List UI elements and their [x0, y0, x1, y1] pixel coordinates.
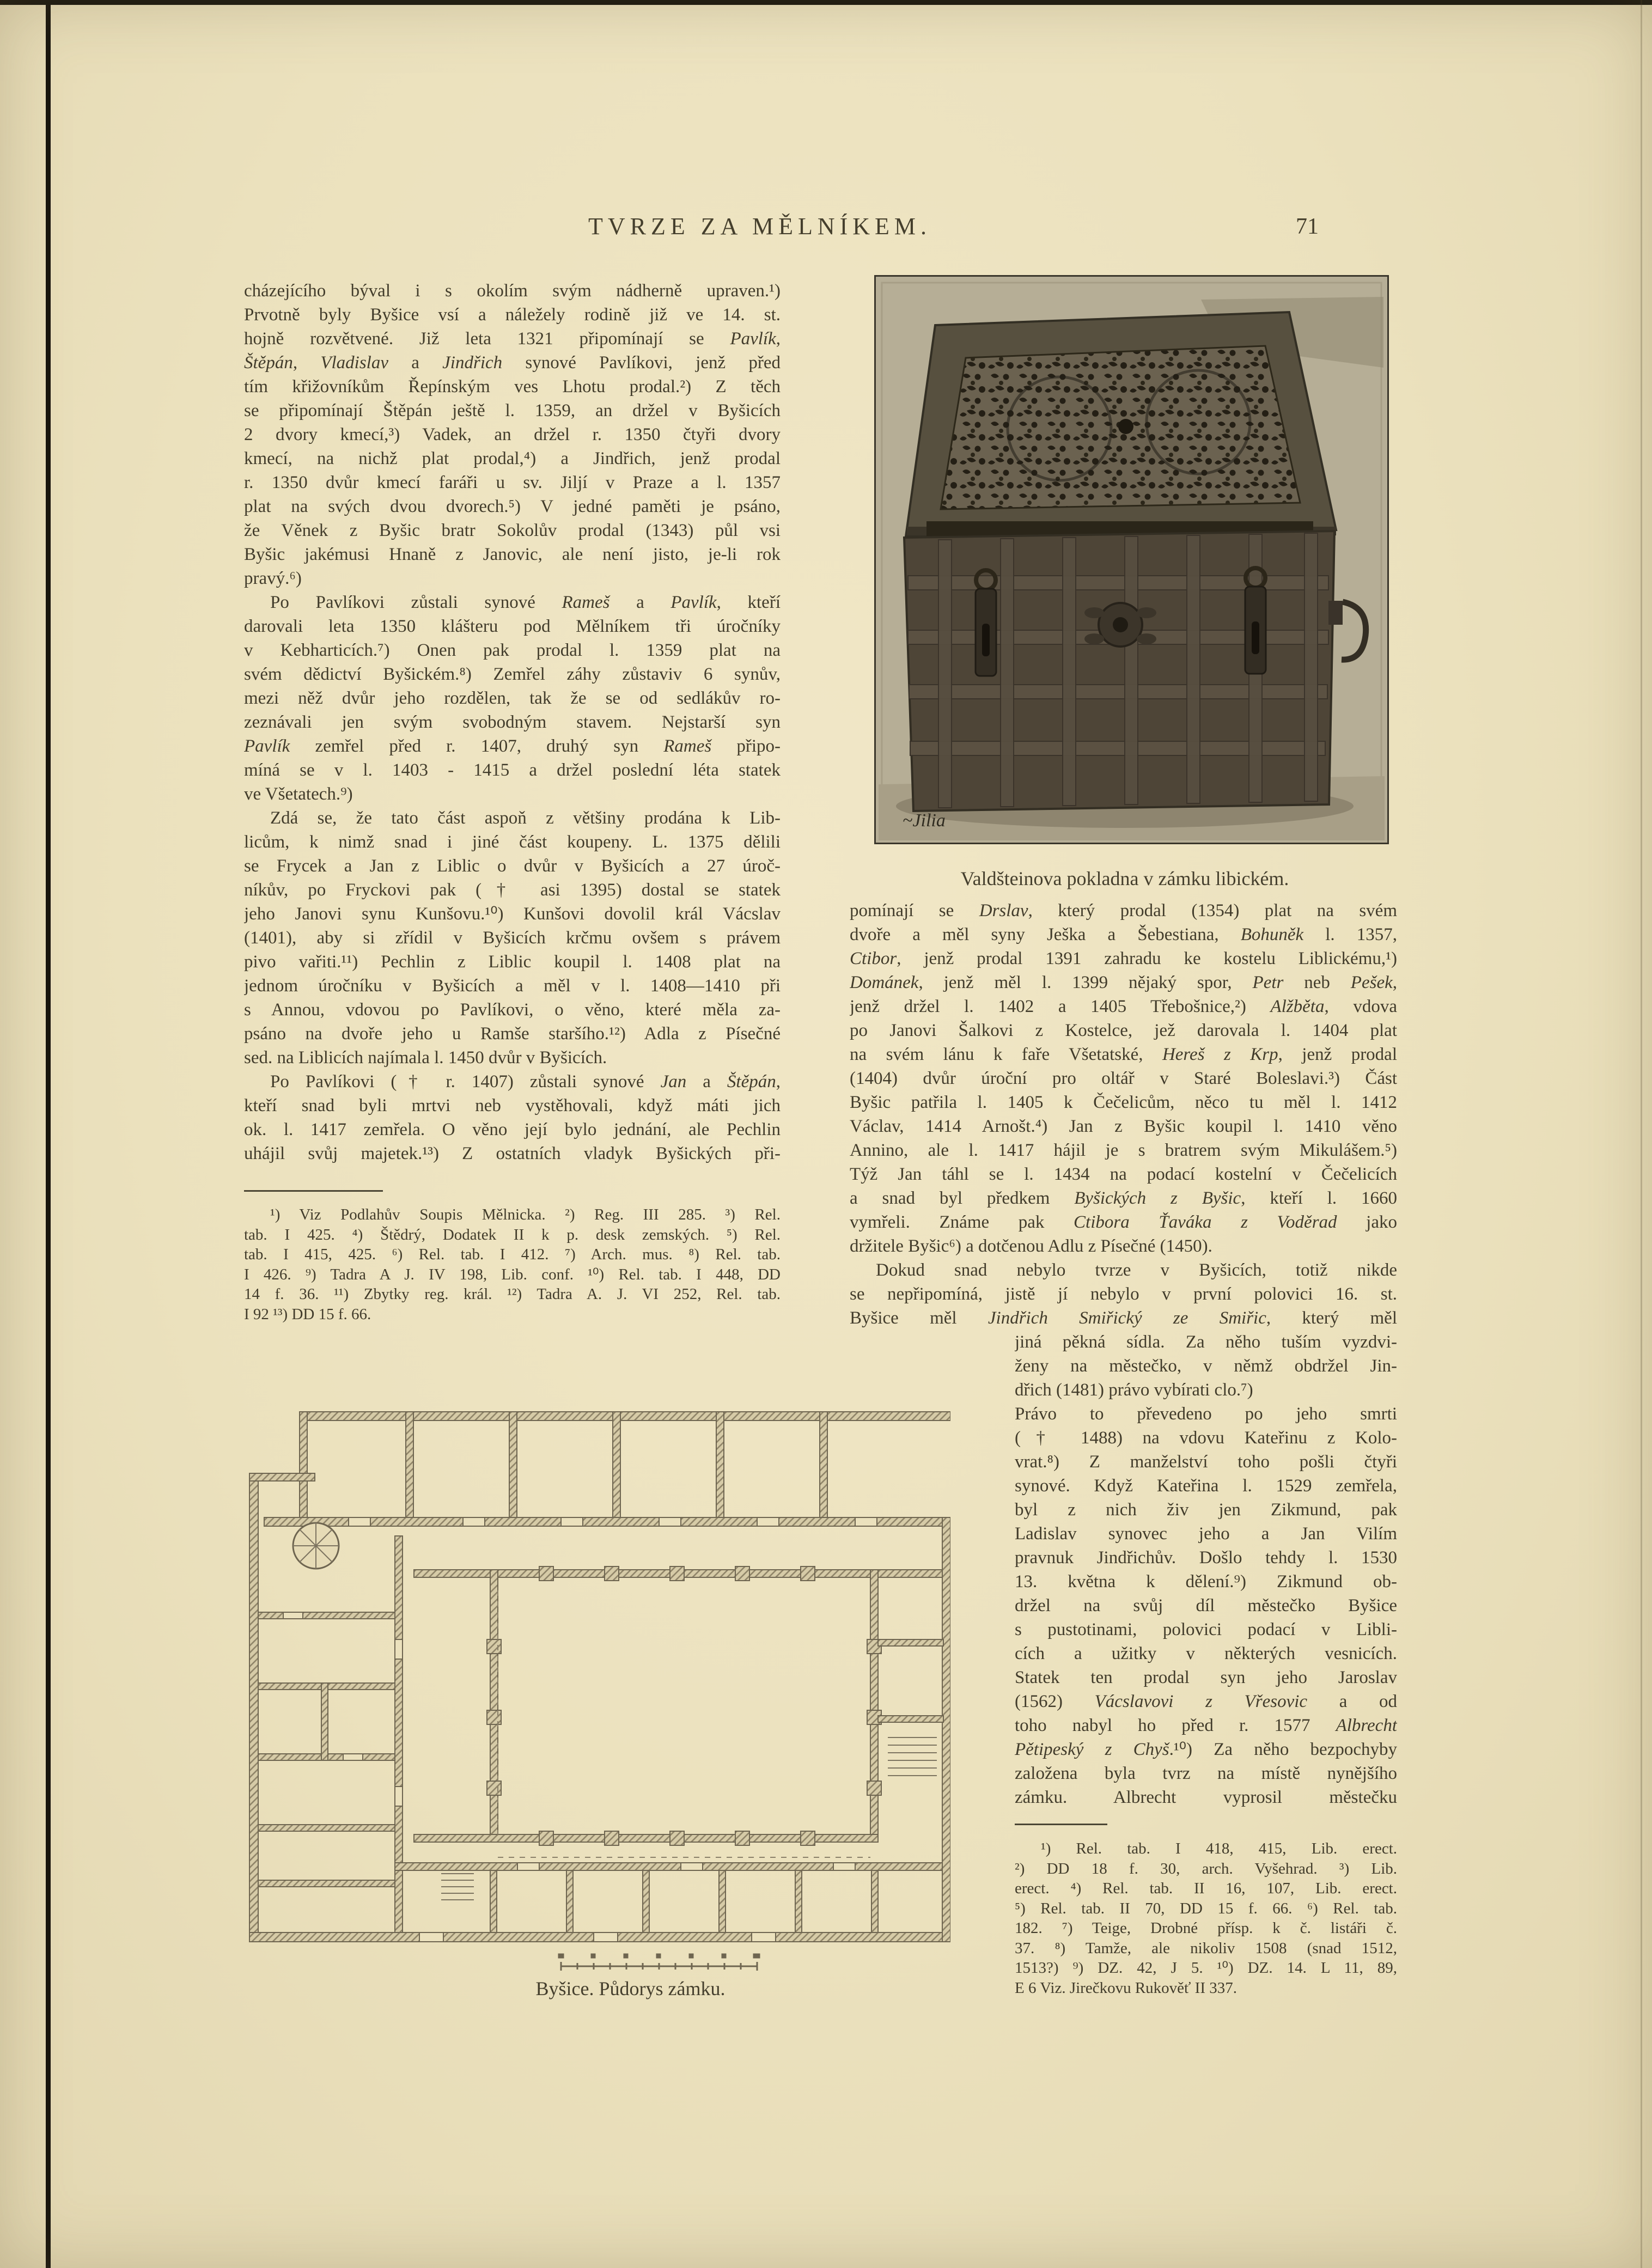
- text-line: níkův, po Fryckovi pak († asi 1395) dost…: [244, 878, 781, 902]
- text-line: Byšic jakémusi Hnaně z Janovic, ale není…: [244, 542, 781, 566]
- page-number: 71: [1269, 214, 1345, 240]
- text-line: Dománek, jenž měl l. 1399 nějaký spor, P…: [850, 971, 1397, 995]
- scan-border-right: [1641, 0, 1642, 2268]
- text-line: E 6 Viz. Jirečkovu Rukověť II 337.: [1015, 1978, 1397, 1998]
- text-line: Václav, 1414 Arnošt.⁴) Jan z Byšic koupi…: [850, 1114, 1397, 1138]
- text-line: Pavlík zemřel před r. 1407, druhý syn Ra…: [244, 734, 781, 758]
- text-line: Prvotně byly Byšice vsí a náležely rodin…: [244, 303, 781, 327]
- floor-plan-drawing: [234, 1411, 950, 1947]
- scan-border-top: [0, 0, 1652, 5]
- left-column-text: cházejícího býval i s okolím svým nádher…: [244, 279, 781, 1166]
- text-line: ⁵) Rel. tab. II 70, DD 15 f. 66. ⁶) Rel.…: [1015, 1899, 1397, 1919]
- text-line: se Frycek a Jan z Liblic o dvůr v Byšicí…: [244, 854, 781, 878]
- photo-signature: ~Jilia: [903, 810, 946, 831]
- text-line: ²) DD 18 f. 30, arch. Vyšehrad. ³) Lib.: [1015, 1859, 1397, 1879]
- text-line: na svém lánu k faře Všetatské, Hereš z K…: [850, 1042, 1397, 1066]
- text-line: (1404) dvůr úroční pro oltář v Staré Bol…: [850, 1066, 1397, 1090]
- text-line: tab. I 415, 425. ⁶) Rel. tab. I 412. ⁷) …: [244, 1245, 781, 1265]
- text-line: 13. května k dělení.⁹) Zikmund ob-: [1015, 1570, 1397, 1594]
- text-line: ¹) Viz Podlahův Soupis Mělnicka. ²) Reg.…: [244, 1205, 781, 1225]
- text-line: založena byla tvrz na místě nynějšího: [1015, 1761, 1397, 1785]
- text-line: kmecí, na nichž plat prodal,⁴) a Jindřic…: [244, 447, 781, 471]
- text-line: 182. ⁷) Teige, Drobné přísp. k č. listář…: [1015, 1918, 1397, 1938]
- text-line: s Annou, vdovou po Pavlíkovi, o věno, kt…: [244, 998, 781, 1022]
- right-footnote-rule: [1015, 1824, 1107, 1825]
- text-line: psáno na dvoře jeho u Ramše staršího.¹²)…: [244, 1022, 781, 1046]
- text-line: Pětipeský z Chyš.¹⁰) Za něho bezpochyby: [1015, 1737, 1397, 1761]
- text-line: tím křižovníkům Řepínským ves Lhotu prod…: [244, 375, 781, 399]
- text-line: Ctibor, jenž prodal 1391 zahradu ke kost…: [850, 947, 1397, 971]
- text-line: držitele Byšic⁶) a dotčenou Adlu z Píseč…: [850, 1234, 1397, 1258]
- text-line: Týž Jan táhl se l. 1434 na podací kostel…: [850, 1162, 1397, 1186]
- left-footnote-rule: [244, 1190, 383, 1192]
- text-line: kteří snad byli mrtvi neb vystěhovali, k…: [244, 1094, 781, 1118]
- text-line: I 426. ⁹) Tadra A J. IV 198, Lib. conf. …: [244, 1265, 781, 1285]
- right-column-footnotes: ¹) Rel. tab. I 418, 415, Lib. erect.²) D…: [1015, 1839, 1397, 1998]
- text-line: Po Pavlíkovi zůstali synové Rameš a Pavl…: [244, 590, 781, 614]
- text-line: dvoře a měl syny Ješka a Šebestiana, Boh…: [850, 923, 1397, 947]
- text-line: jiná pěkná sídla. Za něho tuším vyzdvi-: [1015, 1330, 1397, 1354]
- text-line: sed. na Liblicích najímala l. 1450 dvůr …: [244, 1046, 781, 1070]
- text-line: ve Všetatech.⁹): [244, 782, 781, 806]
- text-line: pravnuk Jindřichův. Došlo tehdy l. 1530: [1015, 1546, 1397, 1570]
- left-column-footnotes: ¹) Viz Podlahův Soupis Mělnicka. ²) Reg.…: [244, 1205, 781, 1324]
- text-line: ok. l. 1417 zemřela. O věno její bylo je…: [244, 1118, 781, 1142]
- text-line: tab. I 425. ⁴) Štědrý, Dodatek II k p. d…: [244, 1225, 781, 1245]
- text-line: že Věnek z Byšic bratr Sokolův prodal (1…: [244, 519, 781, 542]
- chest-body: [904, 531, 1334, 811]
- text-line: plat na svých dvou dvorech.⁵) V jedné pa…: [244, 495, 781, 519]
- text-line: Štěpán, Vladislav a Jindřich synové Pavl…: [244, 351, 781, 375]
- text-line: jeho Janovi synu Kunšovu.¹⁰) Kunšovi dov…: [244, 902, 781, 926]
- text-line: Byšice měl Jindřich Smiřický ze Smiřic, …: [850, 1306, 1397, 1330]
- text-line: Statek ten prodal syn jeho Jaroslav: [1015, 1666, 1397, 1690]
- text-line: (1562) Vácslavovi z Vřesovic a od: [1015, 1690, 1397, 1714]
- text-line: Právo to převedeno po jeho smrti: [1015, 1402, 1397, 1426]
- text-line: vrat.⁸) Z manželství toho pošli čtyři: [1015, 1450, 1397, 1474]
- plan-right-wing: [878, 1517, 950, 1942]
- text-line: byl z nich živ jen Zikmund, pak: [1015, 1498, 1397, 1522]
- plan-stair-tower: [293, 1523, 339, 1569]
- text-line: mezi něž dvůr jeho rozdělen, tak že se o…: [244, 686, 781, 710]
- text-line: po Janovi Šalkovi z Kostelce, jež darova…: [850, 1019, 1397, 1042]
- text-line: († 1488) na vdovu Kateřinu z Kolo-: [1015, 1426, 1397, 1450]
- text-line: Annino, ale l. 1417 hájil je s bratrem s…: [850, 1138, 1397, 1162]
- text-line: (1401), aby si zřídil v Byšicích krčmu o…: [244, 926, 781, 950]
- text-line: Dokud snad nebylo tvrze v Byšicích, toti…: [850, 1258, 1397, 1282]
- text-line: se nepřipomíná, jistě jí nebylo v první …: [850, 1282, 1397, 1306]
- plan-arcade-pillars: [487, 1566, 881, 1845]
- text-line: 14 f. 36. ¹¹) Zbytky reg. král. ¹²) Tadr…: [244, 1284, 781, 1304]
- text-line: Byšic patřila l. 1405 k Čečelicům, něco …: [850, 1090, 1397, 1114]
- text-line: Ladislav synovec jeho a Jan Vilím: [1015, 1522, 1397, 1546]
- text-line: s pustotinami, polovici podací v Libli-: [1015, 1618, 1397, 1642]
- text-line: 2 dvory kmecí,³) Vadek, an držel r. 1350…: [244, 423, 781, 447]
- plan-scale-bar: [556, 1950, 763, 1974]
- floor-plan-figure: [234, 1411, 950, 1947]
- text-line: erect. ⁴) Rel. tab. II 16, 107, Lib. ere…: [1015, 1879, 1397, 1899]
- page-title: TVRZE ZA MĚLNÍKEM.: [229, 212, 1291, 240]
- text-line: držel na svůj díl městečko Byšice: [1015, 1594, 1397, 1618]
- plan-courtyard: [414, 1566, 950, 1857]
- text-line: pravý.⁶): [244, 566, 781, 590]
- text-line: zámku. Albrecht vyprosil městečku: [1015, 1785, 1397, 1809]
- plan-caption: Byšice. Půdorys zámku.: [272, 1977, 989, 2000]
- chest-lid: [906, 312, 1336, 536]
- text-line: 37. ⁸) Tamže, ale nikoliv 1508 (snad 151…: [1015, 1938, 1397, 1959]
- right-column-upper-text: pomínají se Drslav, který prodal (1354) …: [850, 899, 1397, 1330]
- text-line: pomínají se Drslav, který prodal (1354) …: [850, 899, 1397, 923]
- text-line: a snad byl předkem Byšických z Byšic, kt…: [850, 1186, 1397, 1210]
- text-line: hojně rozvětvené. Již leta 1321 připomín…: [244, 327, 781, 351]
- text-line: licům, k nimž snad i jiné část koupeny. …: [244, 830, 781, 854]
- plan-top-wing: [264, 1412, 950, 1526]
- text-line: darovali leta 1350 klášteru pod Mělníkem…: [244, 614, 781, 638]
- text-line: jednom úročníku v Byšicích a měl v l. 14…: [244, 974, 781, 998]
- text-line: Po Pavlíkovi († r. 1407) zůstali synové …: [244, 1070, 781, 1094]
- text-line: jenž držel l. 1402 a 1405 Třebošnice,²) …: [850, 995, 1397, 1019]
- text-line: ženy na městečko, v němž obdržel Jin-: [1015, 1354, 1397, 1378]
- text-line: vymřeli. Známe pak Ctibora Ťaváka z Vodě…: [850, 1210, 1397, 1234]
- book-page: TVRZE ZA MĚLNÍKEM. 71 cházejícího býval …: [0, 0, 1652, 2268]
- text-line: se připomínají Štěpán ještě l. 1359, an …: [244, 399, 781, 423]
- text-line: dřich (1481) právo vybírati clo.⁷): [1015, 1378, 1397, 1402]
- right-column-lower-text: jiná pěkná sídla. Za něho tuším vyzdvi-ž…: [1015, 1330, 1397, 1809]
- text-line: v Kebharticích.⁷) Onen pak prodal l. 135…: [244, 638, 781, 662]
- text-line: míná se v l. 1403 - 1415 a držel posledn…: [244, 758, 781, 782]
- text-line: r. 1350 dvůr kmecí faráři u sv. Jiljí v …: [244, 471, 781, 495]
- text-line: 1513?) ⁹) DZ. 42, J 5. ¹⁰) DZ. 14. L 11,…: [1015, 1958, 1397, 1978]
- text-line: zeznávali jen svým svobodným stavem. Nej…: [244, 710, 781, 734]
- text-line: uhájil svůj majetek.¹³) Z ostatních vlad…: [244, 1142, 781, 1166]
- text-line: Zdá se, že tato část aspoň z většiny pro…: [244, 806, 781, 830]
- scan-border-left: [46, 0, 51, 2268]
- chest-photo: ~Jilia: [874, 275, 1389, 844]
- plan-bottom-wing: [249, 1863, 950, 1942]
- photo-caption: Valdšteinova pokladna v zámku libickém.: [850, 867, 1400, 890]
- chest-photo-figure: ~Jilia: [874, 275, 1389, 844]
- text-line: cházejícího býval i s okolím svým nádher…: [244, 279, 781, 303]
- text-line: toho nabyl ho před r. 1577 Albrecht: [1015, 1714, 1397, 1737]
- text-line: svém dědictví Byšickém.⁸) Zemřel záhy zů…: [244, 662, 781, 686]
- text-line: I 92 ¹³) DD 15 f. 66.: [244, 1304, 781, 1325]
- text-line: cích a užitky v některých vesnicích.: [1015, 1642, 1397, 1666]
- text-line: ¹) Rel. tab. I 418, 415, Lib. erect.: [1015, 1839, 1397, 1859]
- text-line: pivo vařiti.¹¹) Pechlin z Liblic koupil …: [244, 950, 781, 974]
- text-line: synové. Když Kateřina l. 1529 zemřela,: [1015, 1474, 1397, 1498]
